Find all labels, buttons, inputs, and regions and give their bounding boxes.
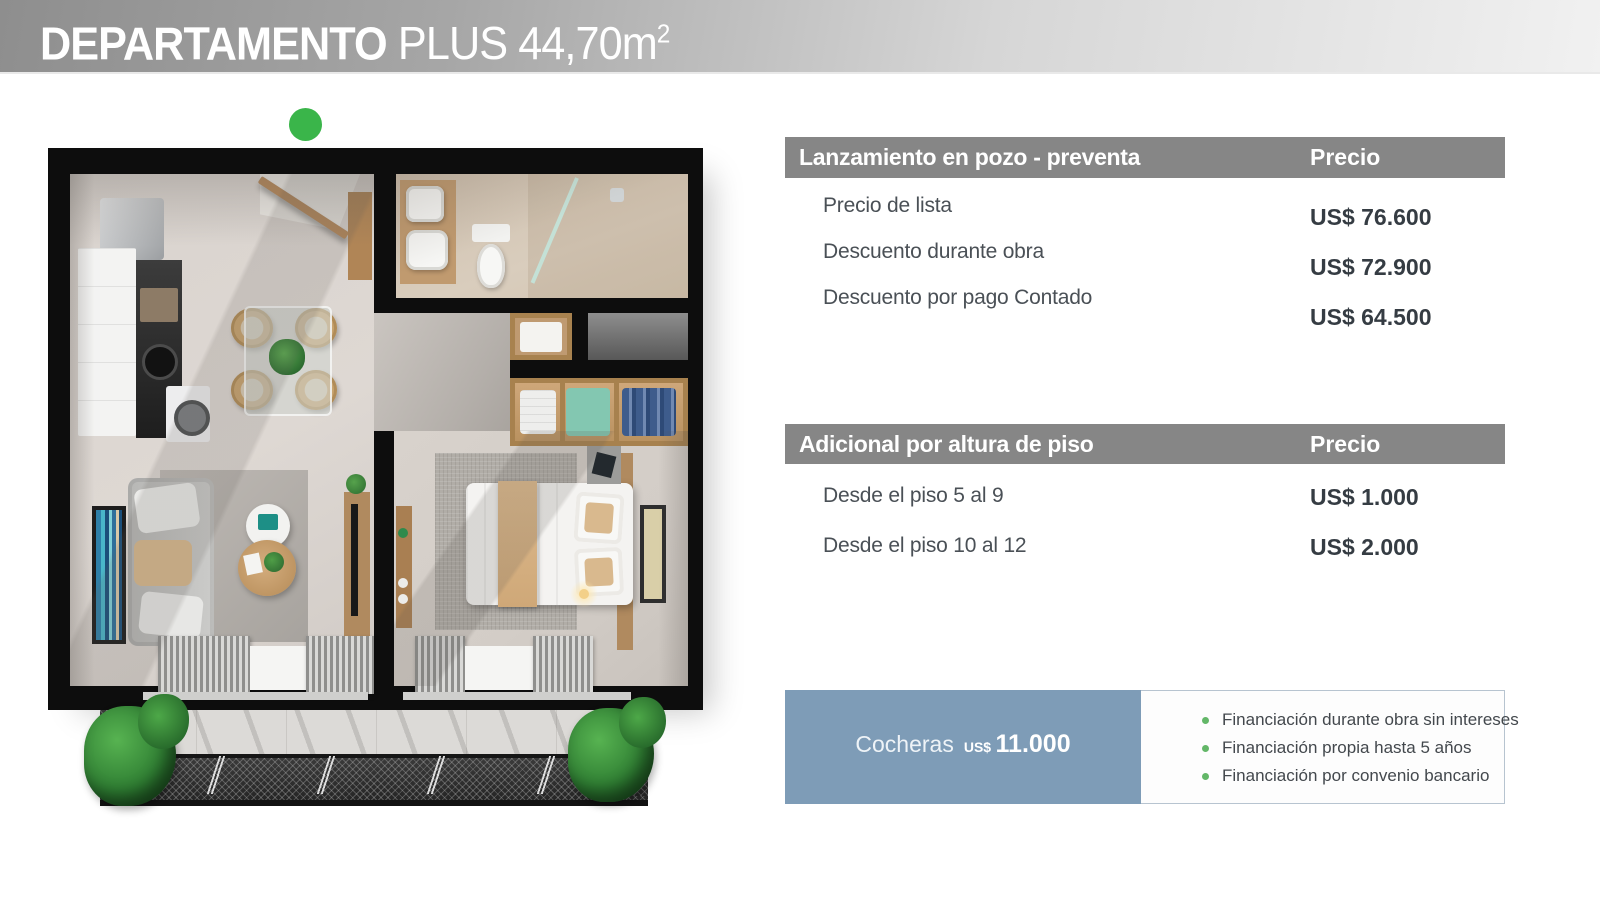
shelf-item [398, 594, 408, 604]
wardrobe-divider [560, 382, 565, 442]
washing-machine [166, 386, 210, 442]
cooktop [142, 344, 178, 380]
closet-opening [588, 313, 688, 360]
folded-clothes-denim [622, 388, 676, 436]
balcony-railing [100, 754, 648, 806]
folded-clothes-teal [566, 388, 610, 436]
table-header: Adicional por altura de piso Precio [785, 424, 1505, 464]
bed-pillow [573, 491, 624, 544]
row-price: US$ 2.000 [1310, 534, 1419, 561]
bedside-lamp [579, 589, 589, 599]
dining-plant [269, 339, 305, 375]
page-title: DEPARTAMENTOPLUS 44,70m2 [40, 8, 669, 69]
row-label: Desde el piso 10 al 12 [823, 534, 1026, 558]
bedroom-artwork [640, 505, 666, 603]
financing-item: Financiación por convenio bancario [1196, 762, 1519, 790]
floorplan [48, 148, 703, 710]
row-price: US$ 76.600 [1310, 204, 1431, 231]
green-marker-dot [289, 108, 322, 141]
row-price: US$ 64.500 [1310, 304, 1431, 331]
bullet-icon [1202, 773, 1209, 780]
shelf-plant [398, 528, 408, 538]
row-price: US$ 72.900 [1310, 254, 1431, 281]
shelf-item [398, 578, 408, 588]
cocheras-label: Cocheras [855, 731, 953, 757]
kitchen-appliance [140, 288, 178, 322]
curtain [158, 636, 250, 694]
row-label: Descuento por pago Contado [823, 286, 1092, 310]
brochure-page: DEPARTAMENTOPLUS 44,70m2 [0, 0, 1600, 900]
row-price: US$ 1.000 [1310, 484, 1419, 511]
pricing-table-launch: Lanzamiento en pozo - preventa Precio Pr… [785, 137, 1505, 337]
price-column-header: Precio [1310, 137, 1380, 178]
row-label: Desde el piso 5 al 9 [823, 484, 1003, 508]
financing-item: Financiación propia hasta 5 años [1196, 734, 1519, 762]
window-glass [465, 646, 533, 690]
title-main: DEPARTAMENTO [40, 17, 387, 69]
row-label: Descuento durante obra [823, 240, 1044, 264]
table-title: Lanzamiento en pozo - preventa [799, 137, 1140, 178]
cocheras-currency: US$ [964, 739, 991, 755]
bullet-icon [1202, 717, 1209, 724]
hallway-floor [374, 313, 510, 431]
coffee-table-tray [258, 514, 278, 530]
bathroom-sink [406, 230, 448, 270]
title-superscript: 2 [657, 19, 670, 49]
financing-item: Financiación durante obra sin intereses [1196, 706, 1519, 734]
shower-head [610, 188, 624, 202]
cocheras-box: CocherasUS$ 11.000 Financiación durante … [785, 690, 1505, 804]
wall-artwork [92, 506, 126, 644]
cocheras-amount: 11.000 [996, 730, 1071, 758]
coffee-table-plant [264, 552, 284, 572]
entry-cabinet [348, 192, 372, 280]
row-label: Precio de lista [823, 194, 952, 218]
balcony [100, 710, 648, 806]
bedroom-wall-shelf [396, 506, 412, 628]
curtain [415, 636, 465, 694]
towels [520, 322, 562, 352]
header-bar: DEPARTAMENTOPLUS 44,70m2 [0, 0, 1600, 74]
toilet-tank [472, 224, 510, 242]
bathroom-sink [406, 186, 444, 222]
window-sill [403, 692, 631, 700]
cocheras-price: CocherasUS$ 11.000 [785, 730, 1141, 759]
table-title: Adicional por altura de piso [799, 424, 1093, 464]
wardrobe-divider [614, 382, 619, 442]
title-sub: PLUS 44,70m2 [398, 17, 670, 69]
sofa-pillow [138, 591, 204, 639]
cocheras-panel: CocherasUS$ 11.000 [785, 690, 1141, 804]
window-glass [250, 646, 306, 690]
kitchen-cabinet [78, 248, 136, 436]
bed-runner [498, 481, 537, 607]
curtain [306, 636, 374, 694]
folded-clothes-white [520, 390, 556, 434]
financing-list: Financiación durante obra sin intereses … [1196, 706, 1519, 790]
price-column-header: Precio [1310, 424, 1380, 464]
pricing-table-floor-height: Adicional por altura de piso Precio Desd… [785, 424, 1505, 574]
curtain [533, 636, 593, 694]
bullet-icon [1202, 745, 1209, 752]
table-header: Lanzamiento en pozo - preventa Precio [785, 137, 1505, 178]
tv [351, 504, 358, 616]
toilet-bowl [477, 244, 505, 288]
tv-stand-plant [346, 474, 366, 494]
sofa-pillow [133, 482, 201, 534]
sofa-pillow [134, 540, 192, 586]
